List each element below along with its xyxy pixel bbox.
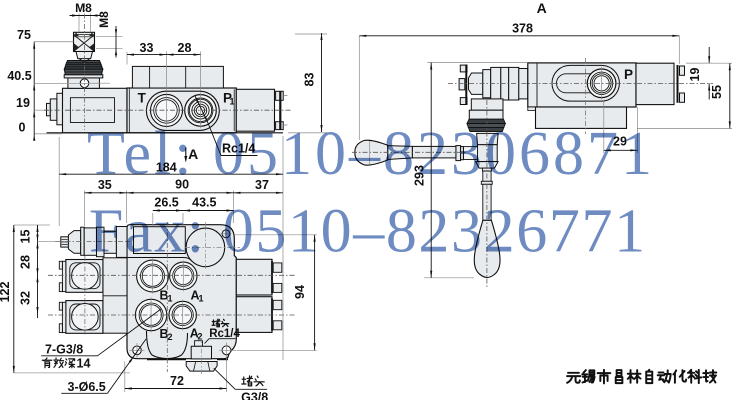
svg-text:19: 19 bbox=[688, 68, 702, 82]
svg-text:Fax: 0510–82326771: Fax: 0510–82326771 bbox=[89, 198, 647, 266]
svg-text:P: P bbox=[624, 67, 633, 82]
svg-text:378: 378 bbox=[512, 22, 533, 36]
svg-text:Tel: 0510–82306871: Tel: 0510–82306871 bbox=[87, 120, 655, 188]
svg-text:1: 1 bbox=[230, 97, 235, 107]
svg-text:75: 75 bbox=[17, 28, 31, 42]
svg-text:14: 14 bbox=[77, 357, 91, 371]
svg-text:55: 55 bbox=[710, 85, 724, 99]
svg-text:94: 94 bbox=[293, 285, 307, 299]
svg-text:T: T bbox=[138, 91, 147, 106]
svg-text:28: 28 bbox=[178, 41, 192, 55]
svg-text:A: A bbox=[537, 0, 547, 16]
svg-text:19: 19 bbox=[16, 96, 30, 110]
svg-text:M8: M8 bbox=[97, 11, 111, 28]
svg-text:15: 15 bbox=[19, 230, 33, 244]
svg-text:G3/8: G3/8 bbox=[241, 391, 268, 400]
svg-text:0: 0 bbox=[19, 121, 26, 135]
svg-text:1: 1 bbox=[199, 294, 204, 304]
svg-text:1: 1 bbox=[168, 294, 173, 304]
svg-text:3-Ø6.5: 3-Ø6.5 bbox=[68, 380, 106, 394]
svg-text:32: 32 bbox=[19, 291, 33, 305]
svg-text:M8: M8 bbox=[75, 1, 92, 15]
svg-text:7-G3/8: 7-G3/8 bbox=[45, 343, 83, 357]
svg-text:83: 83 bbox=[303, 73, 317, 87]
svg-text:33: 33 bbox=[140, 41, 154, 55]
svg-text:2: 2 bbox=[198, 332, 203, 342]
svg-text:2: 2 bbox=[168, 332, 173, 342]
svg-text:122: 122 bbox=[0, 282, 12, 303]
svg-text:72: 72 bbox=[170, 374, 184, 388]
svg-text:28: 28 bbox=[19, 255, 33, 269]
svg-text:40.5: 40.5 bbox=[7, 69, 31, 83]
